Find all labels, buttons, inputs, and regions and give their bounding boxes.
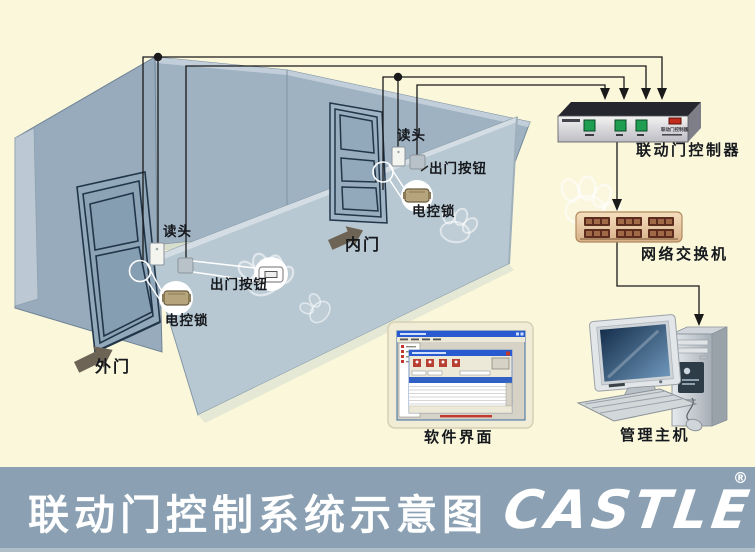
page-title: 联动门控制系统示意图	[28, 481, 488, 541]
inner-door-exit-button-device	[410, 155, 425, 169]
network-switch-device	[576, 212, 682, 242]
outer-door-lock-label: 电控锁	[165, 315, 209, 329]
outer-door-reader-label: 读头	[163, 226, 192, 240]
inner-door-exit-button-label: 出门按钮	[429, 163, 487, 177]
inner-door-reader-device	[392, 147, 405, 166]
wire-junction-dot	[394, 73, 402, 81]
electric-lock-icon	[403, 189, 431, 202]
wire-junction-dot	[154, 53, 162, 61]
controller-device: 联动门控制器	[558, 102, 701, 142]
software-window	[388, 322, 533, 428]
brand-logo: CASTLE	[500, 480, 755, 541]
computer-monitor	[589, 314, 681, 391]
diagram-canvas: 联动门控制器	[0, 0, 755, 552]
software-interface-label: 软件界面	[424, 430, 494, 445]
inner-door-lock-label: 电控锁	[412, 206, 456, 220]
footer-bottom-strip	[0, 548, 755, 552]
outer-door-exit-button-label: 出门按钮	[210, 279, 268, 293]
left-wall-outer-edge	[15, 128, 38, 306]
system-diagram: 联动门控制器	[0, 0, 755, 467]
management-host-label: 管理主机	[620, 428, 690, 443]
electric-lock-icon	[162, 291, 191, 305]
outer-door-exit-button-device	[178, 258, 193, 273]
child-window	[409, 350, 512, 413]
management-host	[578, 314, 727, 432]
network-switch-label: 网络交换机	[641, 247, 729, 262]
inner-door-label: 内门	[345, 237, 381, 253]
outer-door-label: 外门	[95, 359, 131, 375]
controller-power-led	[669, 118, 681, 124]
controller-nameplate: 联动门控制器	[661, 126, 688, 133]
registered-mark: ®	[733, 469, 748, 487]
inner-door-reader-label: 读头	[397, 130, 426, 144]
outer-door-reader-device	[150, 243, 164, 265]
controller-top	[558, 102, 701, 116]
controller-label: 联动门控制器	[636, 143, 741, 158]
